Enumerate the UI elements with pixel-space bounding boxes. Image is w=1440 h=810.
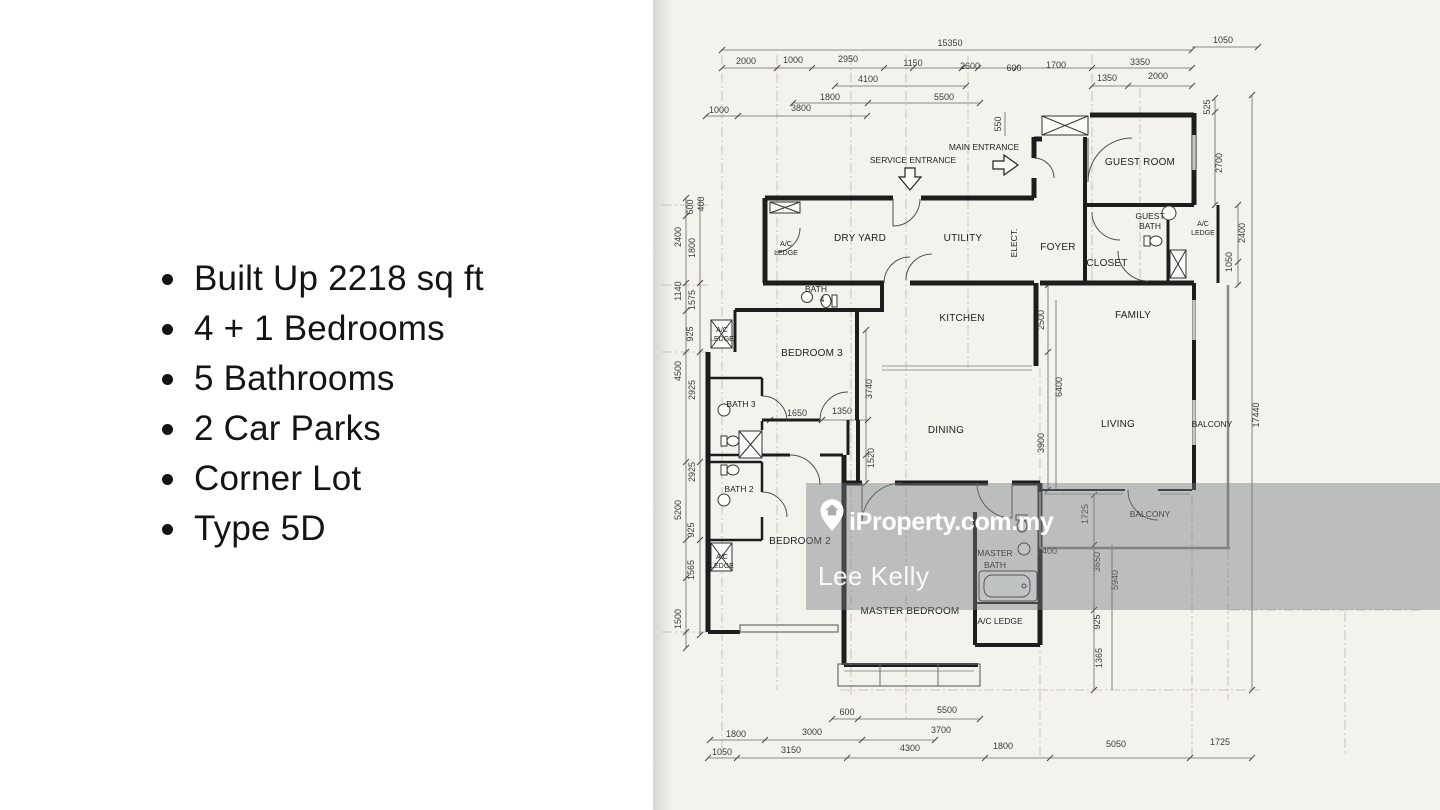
dim-label: 2000 [736, 56, 756, 66]
dim-label: 550 [993, 116, 1003, 131]
room-label-bath4: 4 [820, 294, 825, 304]
dim-label: 15350 [937, 38, 962, 48]
dim-label: 1500 [673, 609, 683, 629]
watermark-agent-text: Lee Kelly [818, 561, 929, 591]
room-label-ac-ledge: A/C [1197, 221, 1209, 228]
dim-label: 925 [686, 522, 696, 537]
dim-label: 2600 [960, 61, 980, 71]
dim-label: 1575 [687, 290, 697, 310]
dim-label: 1350 [1097, 73, 1117, 83]
room-label-bath4: BATH [805, 284, 827, 294]
dim-label: 925 [1092, 614, 1102, 629]
dim-label: 5500 [934, 92, 954, 102]
dim-label: 600 [1006, 63, 1021, 73]
dim-label: 6400 [1054, 377, 1064, 397]
watermark: iProperty.com.my Lee Kelly [806, 483, 1440, 610]
dim-label: 1800 [687, 238, 697, 258]
room-label-ac-ledge-master: A/C LEDGE [977, 616, 1023, 626]
sink-icon [718, 494, 730, 506]
room-label-bath3: BATH 3 [726, 399, 755, 409]
dim-label: 3000 [802, 727, 822, 737]
dim-label: 1365 [1094, 648, 1104, 668]
dim-label: 2950 [838, 54, 858, 64]
dim-label: 1150 [903, 58, 922, 68]
room-label-kitchen: KITCHEN [939, 313, 984, 324]
dim-label: 1050 [712, 747, 732, 757]
room-label-dining: DINING [928, 425, 964, 436]
dim-label: 2700 [1214, 153, 1224, 173]
dim-label: 1050 [1224, 252, 1234, 272]
room-label-ac-ledge: A/C [716, 554, 728, 561]
room-label-guest-room: GUEST ROOM [1105, 157, 1175, 168]
room-label-ac-ledge: A/C [780, 241, 792, 248]
room-label-utility: UTILITY [944, 233, 983, 244]
room-label-bedroom3: BEDROOM 3 [781, 348, 843, 359]
label-main-entrance: MAIN ENTRANCE [949, 142, 1020, 152]
dim-label: 1050 [1213, 35, 1233, 45]
room-label-ac-ledge: LEDGE [1191, 230, 1215, 237]
room-label-ac-ledge: LEDGE [774, 250, 798, 257]
dim-label: 1565 [686, 560, 696, 580]
room-label-family: FAMILY [1115, 310, 1151, 321]
dim-label: 400 [696, 196, 706, 211]
dim-label: 600 [685, 199, 695, 214]
room-label-ac-ledge: A/C [716, 327, 728, 334]
dim-label: 1650 [787, 408, 807, 418]
dim-label: 3150 [781, 745, 801, 755]
dim-label: 2500 [1036, 310, 1046, 330]
dim-label: 1700 [1046, 60, 1066, 70]
dim-label: 1350 [832, 406, 852, 416]
dim-label: 3800 [791, 103, 811, 113]
room-label-closet: CLOSET [1086, 258, 1127, 269]
room-label-balcony-side: BALCONY [1192, 419, 1233, 429]
dim-label: 5050 [1106, 739, 1126, 749]
dim-label: 3900 [1036, 433, 1046, 453]
dim-label: 1000 [783, 55, 803, 65]
dim-label: 925 [685, 326, 695, 341]
dim-label: 4100 [858, 74, 878, 84]
room-label-bath2: BATH 2 [724, 484, 753, 494]
toilet-icon [721, 465, 739, 475]
label-service-entrance: SERVICE ENTRANCE [870, 155, 957, 165]
dim-label: 3700 [931, 725, 951, 735]
watermark-brand-text: iProperty.com.my [849, 508, 1054, 536]
dim-label: 1800 [820, 92, 840, 102]
room-label-elect: ELECT. [1009, 229, 1019, 258]
dim-label: 525 [1202, 99, 1212, 114]
dim-label: 5500 [937, 705, 957, 715]
dim-label: 5200 [673, 500, 683, 520]
dim-label: 3350 [1130, 57, 1150, 67]
dim-label: 2925 [687, 462, 697, 482]
floor-plan-image: SERVICE ENTRANCE MAIN ENTRANCE GUEST ROO… [0, 0, 1440, 810]
dim-label: 600 [839, 707, 854, 717]
dim-label: 3740 [864, 379, 874, 399]
room-label-living: LIVING [1101, 419, 1135, 430]
dim-label: 1800 [993, 741, 1013, 751]
room-label-foyer: FOYER [1040, 242, 1075, 253]
dim-label: 1520 [866, 448, 876, 468]
dim-label: 1725 [1210, 737, 1230, 747]
dim-label: 2400 [673, 227, 683, 247]
dim-label: 4300 [900, 743, 920, 753]
dim-label: 2400 [1237, 223, 1247, 243]
toilet-icon [1144, 236, 1162, 246]
room-label-dry-yard: DRY YARD [834, 233, 886, 244]
dim-label: 4500 [673, 361, 683, 381]
dim-label: 2925 [687, 380, 697, 400]
property-listing-slide: Built Up 2218 sq ft 4 + 1 Bedrooms 5 Bat… [0, 0, 1440, 810]
room-label-ac-ledge: LEDGE [710, 563, 734, 570]
dim-label: 1000 [709, 105, 729, 115]
dim-label: 2000 [1148, 71, 1168, 81]
room-label-guest-bath: GUEST [1135, 211, 1164, 221]
dim-label: 1800 [726, 729, 746, 739]
room-label-guest-bath: BATH [1139, 221, 1161, 231]
toilet-icon [721, 436, 739, 446]
dim-label: 1140 [673, 281, 683, 300]
room-label-ac-ledge: LEDGE [710, 336, 734, 343]
dim-label: 17440 [1251, 402, 1261, 427]
